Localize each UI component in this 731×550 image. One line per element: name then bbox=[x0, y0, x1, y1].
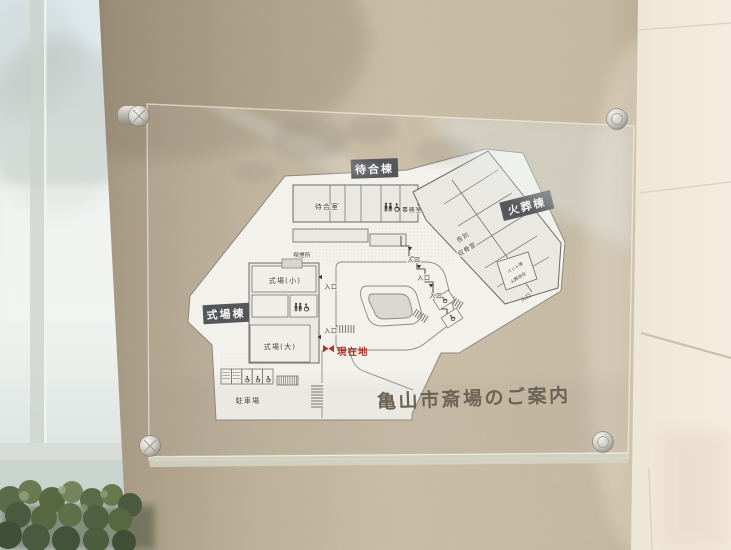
smoking-shelter bbox=[282, 259, 302, 268]
tree-reflection bbox=[272, 120, 348, 160]
tree-reflection bbox=[346, 116, 398, 144]
smoking-area-label: 喫煙所 bbox=[293, 251, 311, 259]
mid-room bbox=[252, 295, 288, 317]
current-location-label: 現在地 bbox=[337, 346, 369, 358]
scene: 待合室 事務室 待合棟 告別 収骨室 ペット等 火葬待合 火葬棟 bbox=[0, 0, 731, 550]
ceremony-building-sign: 式場棟 bbox=[203, 303, 250, 324]
tree-reflection bbox=[235, 162, 275, 182]
entrance-label: 入口 bbox=[417, 275, 430, 282]
entrance-label: 入口 bbox=[429, 293, 442, 300]
restroom bbox=[290, 295, 317, 317]
window-sill bbox=[0, 443, 142, 460]
bolt-icon bbox=[593, 432, 614, 453]
lower-shade bbox=[147, 380, 634, 460]
ceremony-building-title: 式場棟 bbox=[206, 306, 246, 322]
office-label: 事務室 bbox=[402, 206, 422, 214]
photo-of-facility-sign: 待合室 事務室 待合棟 告別 収骨室 ペット等 火葬待合 火葬棟 bbox=[0, 0, 731, 550]
building-outline bbox=[293, 185, 418, 222]
entrance-label: 入口 bbox=[324, 328, 337, 335]
waiting-room-label: 待合室 bbox=[315, 202, 340, 211]
entrance-label: 入口 bbox=[407, 257, 420, 264]
bolt-icon bbox=[607, 109, 628, 130]
hall-small-label: 式場(小) bbox=[269, 276, 301, 285]
ceremony-building: 式場(小) 式場(大) bbox=[249, 263, 319, 363]
corridor bbox=[293, 229, 368, 242]
wall-warm-patch bbox=[660, 430, 731, 550]
crosswalk bbox=[337, 325, 354, 333]
acrylic-sign-panel: 待合室 事務室 待合棟 告別 収骨室 ペット等 火葬待合 火葬棟 bbox=[147, 104, 634, 467]
entrance-label: 入口 bbox=[324, 284, 337, 291]
hall-large-label: 式場(大) bbox=[264, 342, 296, 351]
tree-reflection bbox=[415, 138, 475, 166]
waiting-building: 待合室 事務室 bbox=[293, 185, 422, 246]
